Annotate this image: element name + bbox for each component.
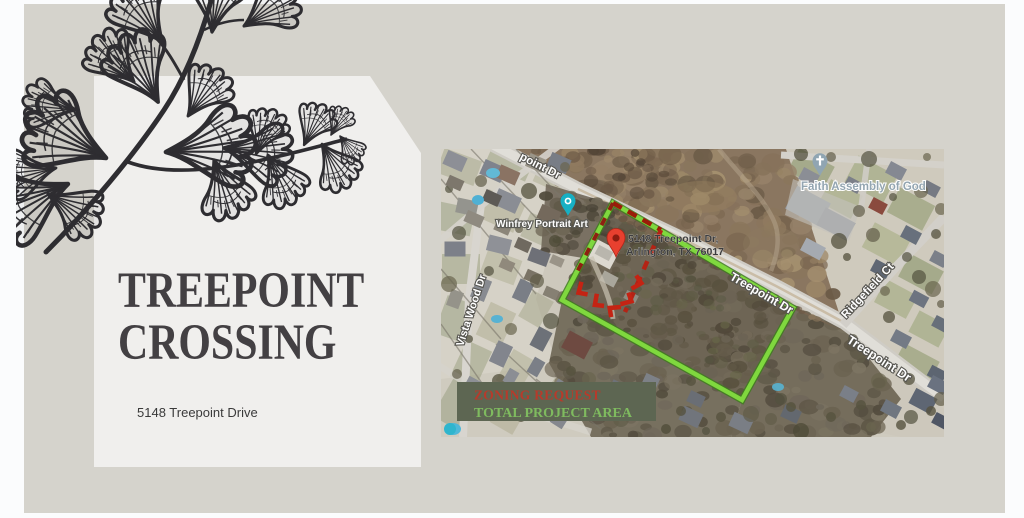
svg-text:Faith Assembly of God: Faith Assembly of God	[801, 181, 926, 193]
svg-text:Arlington, TX 76017: Arlington, TX 76017	[626, 246, 724, 258]
svg-text:5148 Treepoint Dr,: 5148 Treepoint Dr,	[628, 233, 719, 245]
svg-text:TOTAL PROJECT AREA: TOTAL PROJECT AREA	[474, 406, 633, 421]
svg-text:ZONING REQUEST: ZONING REQUEST	[474, 388, 601, 403]
svg-text:Winfrey Portrait Art: Winfrey Portrait Art	[496, 219, 588, 230]
